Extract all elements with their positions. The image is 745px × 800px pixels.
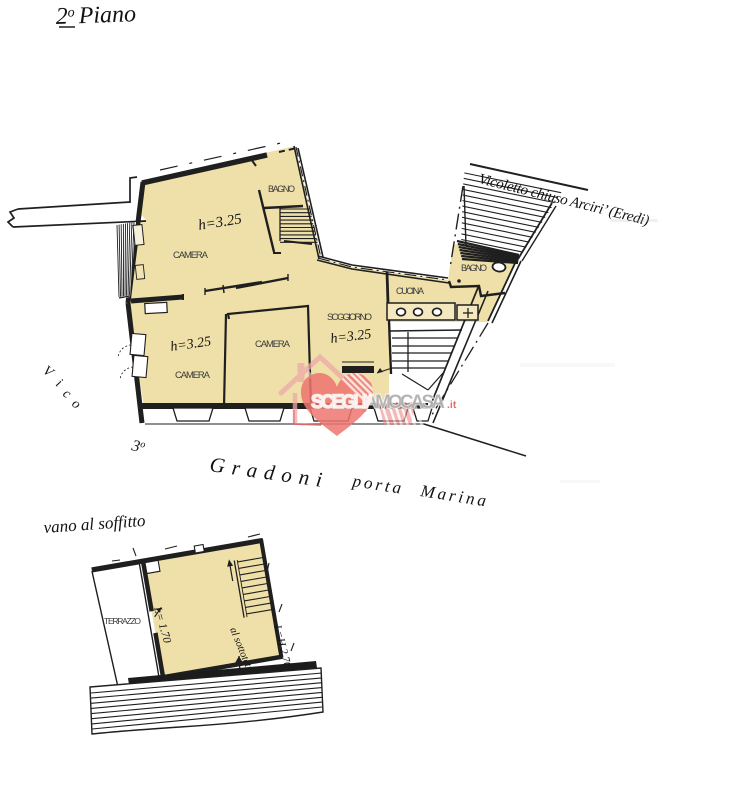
svg-text:.it: .it — [447, 399, 457, 411]
svg-text:CAMERA: CAMERA — [175, 370, 211, 381]
svg-text:CAMERA: CAMERA — [255, 339, 291, 350]
svg-text:CAMERA: CAMERA — [173, 250, 209, 261]
svg-text:BAGNO: BAGNO — [268, 184, 295, 194]
svg-text:SOGGIORNO: SOGGIORNO — [327, 312, 372, 323]
svg-text:CUCINA: CUCINA — [396, 286, 424, 296]
svg-text:BAGNO: BAGNO — [461, 263, 487, 273]
svg-text:2oPiano: 2oPiano — [55, 1, 136, 30]
svg-text:TERRAZZO: TERRAZZO — [104, 616, 141, 626]
